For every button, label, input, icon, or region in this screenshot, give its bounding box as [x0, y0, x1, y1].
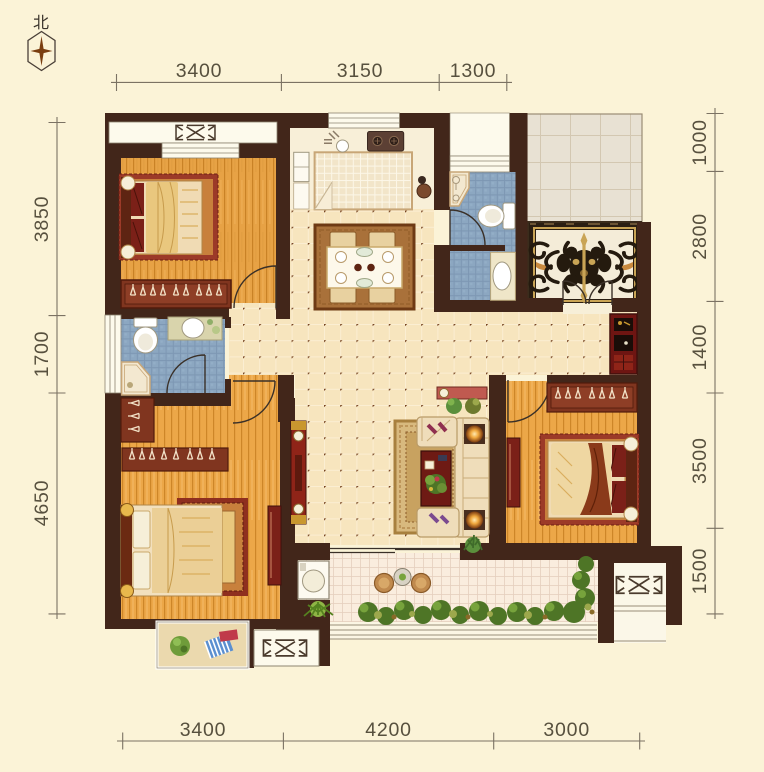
svg-text:3400: 3400 — [176, 60, 223, 82]
svg-text:1400: 1400 — [689, 324, 711, 371]
svg-text:4200: 4200 — [365, 719, 412, 741]
svg-text:北: 北 — [33, 14, 49, 32]
svg-text:2800: 2800 — [689, 213, 711, 260]
svg-text:3000: 3000 — [543, 719, 590, 741]
svg-text:1300: 1300 — [450, 60, 497, 82]
svg-text:1500: 1500 — [689, 548, 711, 595]
svg-text:3850: 3850 — [31, 196, 53, 243]
svg-text:1000: 1000 — [689, 119, 711, 166]
svg-text:3500: 3500 — [689, 437, 711, 484]
svg-text:3400: 3400 — [180, 719, 227, 741]
svg-text:1700: 1700 — [31, 331, 53, 378]
svg-text:3150: 3150 — [337, 60, 384, 82]
svg-text:4650: 4650 — [31, 480, 53, 527]
